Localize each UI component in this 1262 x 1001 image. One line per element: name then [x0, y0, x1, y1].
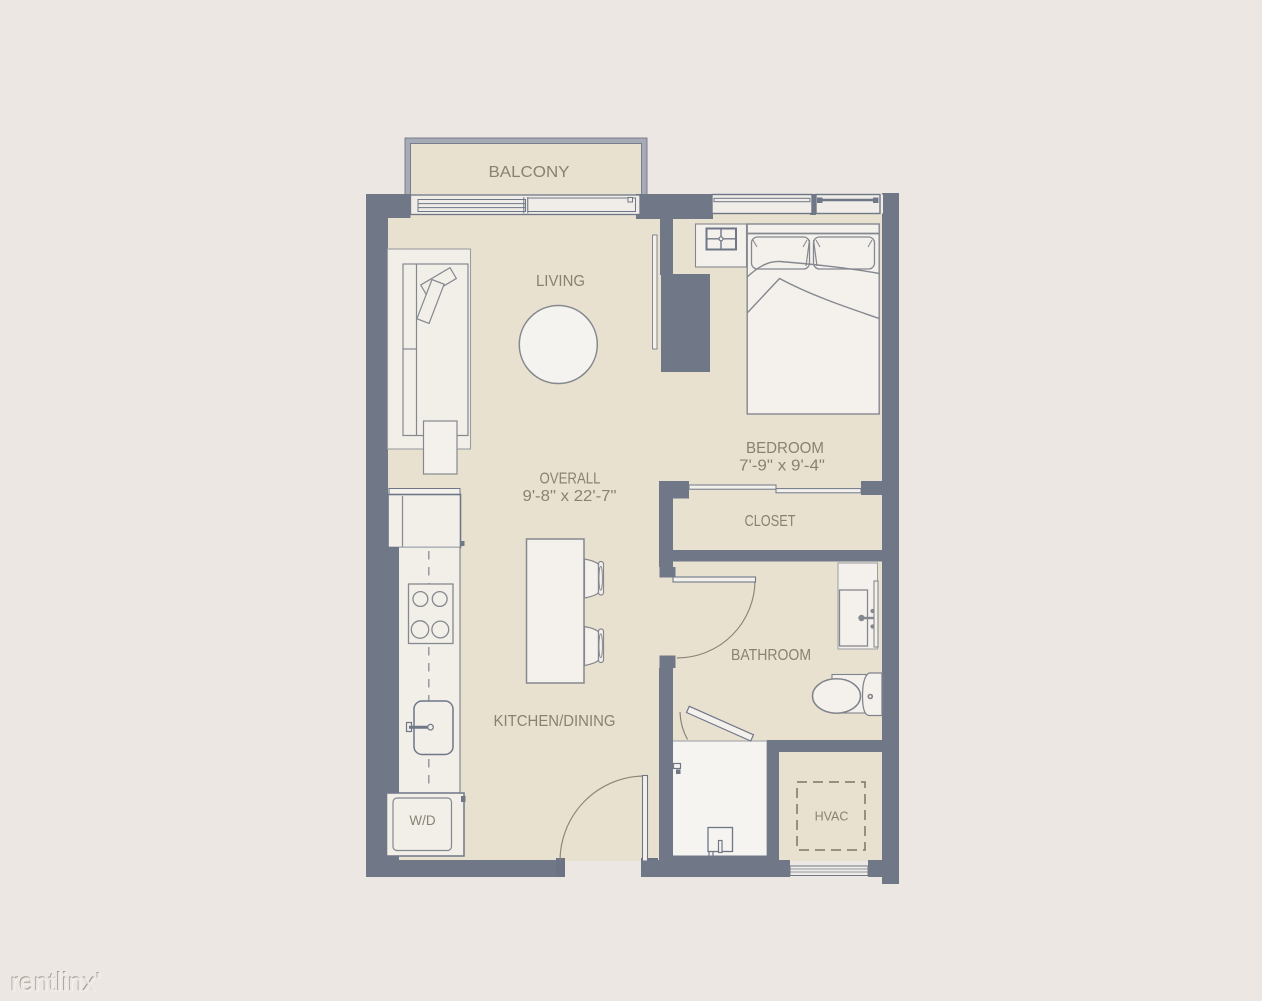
svg-text:7'-9" x 9'-4": 7'-9" x 9'-4" — [739, 458, 825, 475]
svg-text:KITCHEN/DINING: KITCHEN/DINING — [494, 713, 616, 730]
svg-text:BALCONY: BALCONY — [489, 164, 570, 181]
svg-text:BEDROOM: BEDROOM — [746, 440, 824, 457]
svg-text:W/D: W/D — [409, 813, 435, 828]
svg-text:9'-8" x 22'-7": 9'-8" x 22'-7" — [523, 488, 617, 505]
svg-text:BATHROOM: BATHROOM — [731, 647, 811, 664]
svg-text:OVERALL: OVERALL — [540, 471, 601, 488]
svg-text:CLOSET: CLOSET — [745, 513, 796, 530]
svg-text:HVAC: HVAC — [815, 810, 849, 824]
svg-text:LIVING: LIVING — [536, 273, 585, 290]
svg-text:rentlinx': rentlinx' — [11, 967, 102, 997]
